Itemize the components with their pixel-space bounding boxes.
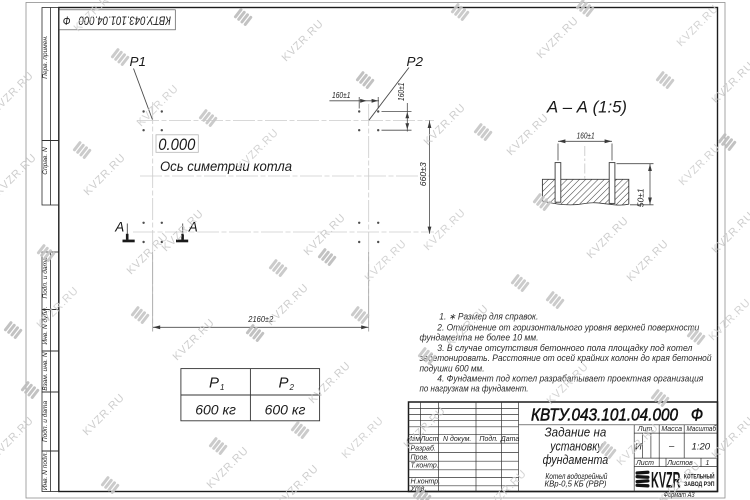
svg-text:Подп. и дата: Подп. и дата (41, 401, 49, 443)
svg-text:2: 2 (289, 383, 295, 392)
svg-text:600 кг: 600 кг (195, 402, 236, 418)
svg-text:А – А (1:5): А – А (1:5) (546, 98, 627, 117)
svg-text:600 кг: 600 кг (265, 402, 306, 418)
svg-text:Подп.: Подп. (479, 435, 498, 443)
svg-text:Справ. N: Справ. N (42, 147, 49, 175)
svg-text:установку: установку (549, 440, 603, 454)
svg-text:Взам. инв. N: Взам. инв. N (42, 352, 49, 391)
svg-text:Лист: Лист (635, 460, 654, 467)
svg-text:фундамента не более 10 мм.: фундамента не более 10 мм. (420, 333, 539, 343)
svg-text:Пров.: Пров. (411, 454, 430, 461)
svg-text:Задание на: Задание на (545, 426, 607, 440)
svg-text:забетонировать. Расстояние от: забетонировать. Расстояние от осей крайн… (419, 353, 712, 363)
svg-text:Перв. примен.: Перв. примен. (42, 35, 49, 79)
svg-text:1:20: 1:20 (692, 442, 711, 453)
svg-text:Н.контр.: Н.контр. (411, 479, 441, 486)
svg-text:660±3: 660±3 (419, 162, 428, 187)
svg-text:КВТУ.043.101.04.000 Ф: КВТУ.043.101.04.000 Ф (531, 404, 703, 424)
svg-text:Масса: Масса (661, 426, 682, 433)
svg-text:0.000: 0.000 (158, 135, 195, 154)
svg-text:по нагрузкам на фундамент.: по нагрузкам на фундамент. (420, 384, 529, 394)
svg-text:P2: P2 (407, 54, 424, 69)
svg-text:1: 1 (220, 383, 224, 392)
svg-text:P: P (209, 375, 219, 392)
svg-text:160±1: 160±1 (332, 91, 351, 100)
svg-text:А: А (114, 219, 124, 234)
svg-text:160±1: 160±1 (397, 83, 406, 102)
svg-text:N докум.: N докум. (443, 435, 471, 443)
svg-text:Инв. N подл.: Инв. N подл. (41, 452, 49, 491)
svg-text:–: – (668, 441, 675, 452)
svg-text:Дата: Дата (500, 436, 520, 443)
svg-text:КВр-0,5 КБ (РВР): КВр-0,5 КБ (РВР) (545, 479, 607, 489)
svg-text:Ось симетрии котла: Ось симетрии котла (160, 158, 292, 174)
svg-text:Масштаб: Масштаб (687, 425, 717, 433)
svg-text:фундамента: фундамента (543, 453, 609, 467)
svg-text:Т.контр.: Т.контр. (411, 463, 439, 470)
svg-text:160±1: 160±1 (577, 132, 595, 141)
svg-text:P: P (279, 375, 289, 392)
svg-text:50±1: 50±1 (636, 188, 645, 207)
svg-text:3. В случае отсутствия бетонн: 3. В случае отсутствия бетонного пола пл… (437, 343, 692, 353)
svg-text:Подп. и дата: Подп. и дата (41, 257, 49, 299)
svg-text:P1: P1 (130, 54, 147, 69)
svg-text:1: 1 (706, 460, 710, 467)
